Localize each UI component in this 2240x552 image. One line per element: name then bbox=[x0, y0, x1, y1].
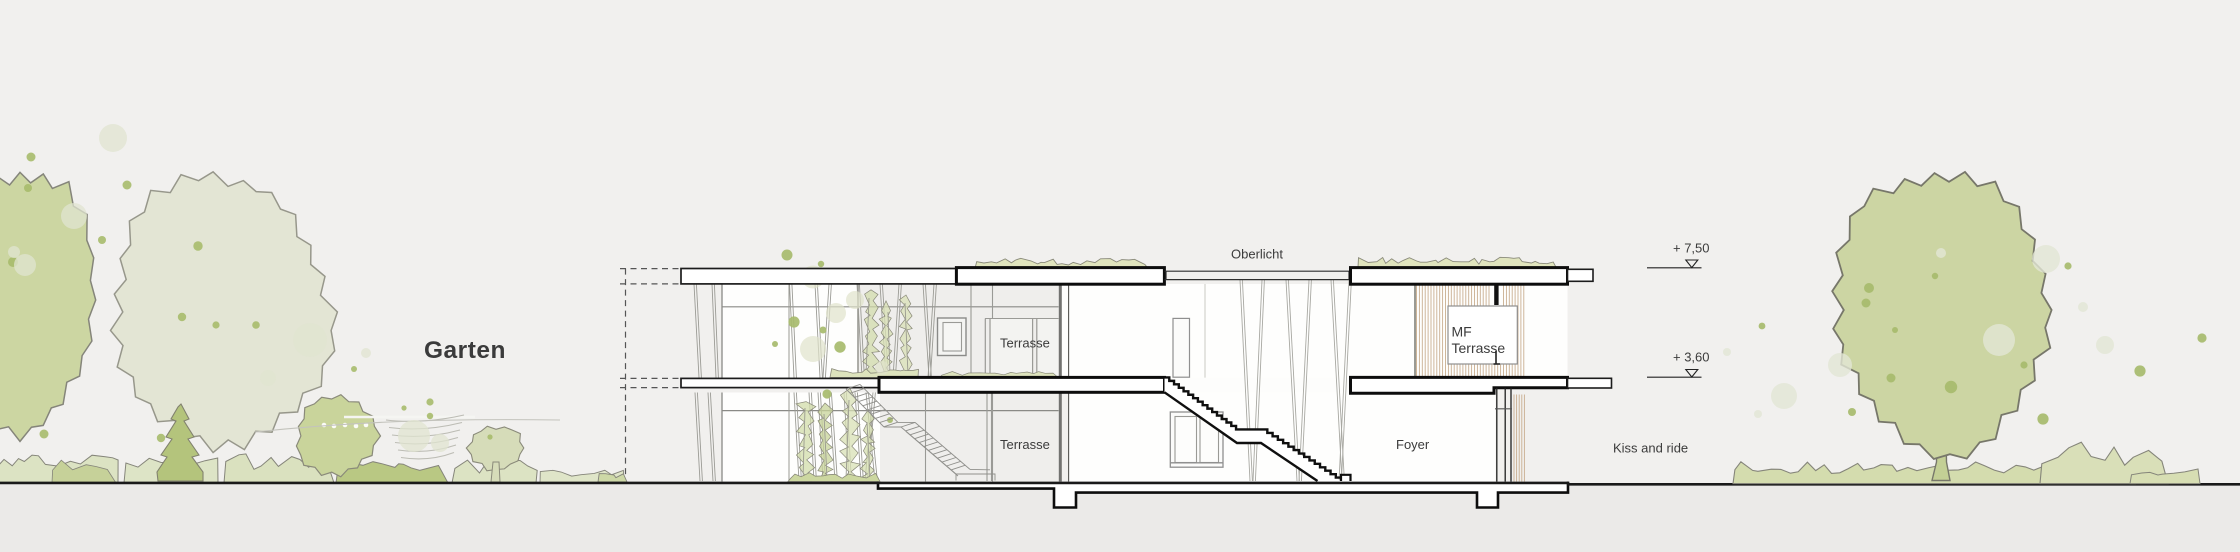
svg-text:Oberlicht: Oberlicht bbox=[1231, 247, 1283, 262]
svg-text:Terrasse: Terrasse bbox=[1000, 336, 1050, 351]
svg-text:Kiss and ride: Kiss and ride bbox=[1613, 441, 1688, 456]
svg-text:Terrasse: Terrasse bbox=[1452, 340, 1506, 356]
svg-text:+ 7,50: + 7,50 bbox=[1673, 241, 1710, 256]
svg-text:Foyer: Foyer bbox=[1396, 437, 1430, 452]
svg-text:MF: MF bbox=[1452, 324, 1472, 340]
svg-text:+ 3,60: + 3,60 bbox=[1673, 350, 1710, 365]
svg-text:Garten: Garten bbox=[424, 337, 506, 364]
svg-text:Terrasse: Terrasse bbox=[1000, 437, 1050, 452]
